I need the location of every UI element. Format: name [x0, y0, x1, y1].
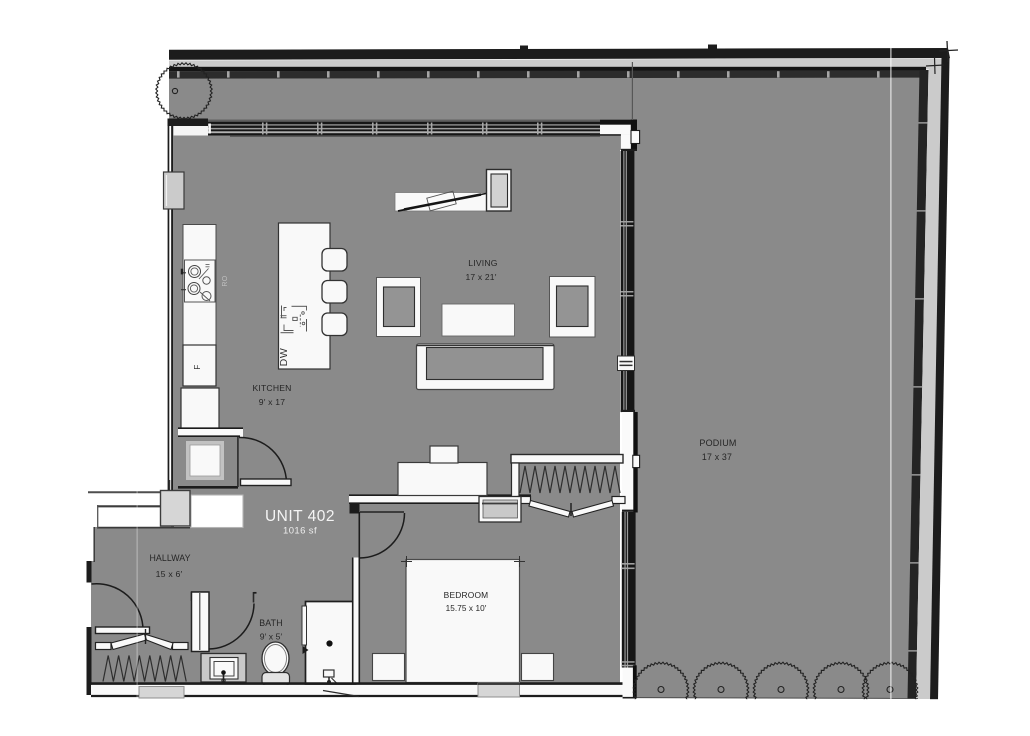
svg-text:15.75 x 10′: 15.75 x 10′: [446, 604, 487, 613]
svg-text:DW: DW: [278, 348, 290, 367]
svg-text:HALLWAY: HALLWAY: [149, 553, 190, 563]
svg-text:1016 sf: 1016 sf: [283, 526, 317, 537]
svg-text:9′ x 17: 9′ x 17: [259, 397, 285, 407]
svg-text:15 x 6′: 15 x 6′: [156, 569, 183, 579]
svg-text:RO: RO: [222, 275, 229, 286]
svg-text:F: F: [193, 364, 202, 369]
svg-text:17 x 21′: 17 x 21′: [465, 272, 496, 282]
svg-text:LIVING: LIVING: [468, 258, 497, 268]
svg-text:KITCHEN: KITCHEN: [252, 383, 291, 393]
svg-text:BEDROOM: BEDROOM: [444, 590, 489, 600]
svg-text:UNIT 402: UNIT 402: [265, 508, 335, 525]
svg-text:17 x 37: 17 x 37: [702, 452, 732, 462]
svg-text:BATH: BATH: [259, 618, 283, 628]
svg-text:9′ x 5′: 9′ x 5′: [260, 632, 283, 642]
svg-text:PODIUM: PODIUM: [699, 438, 736, 448]
